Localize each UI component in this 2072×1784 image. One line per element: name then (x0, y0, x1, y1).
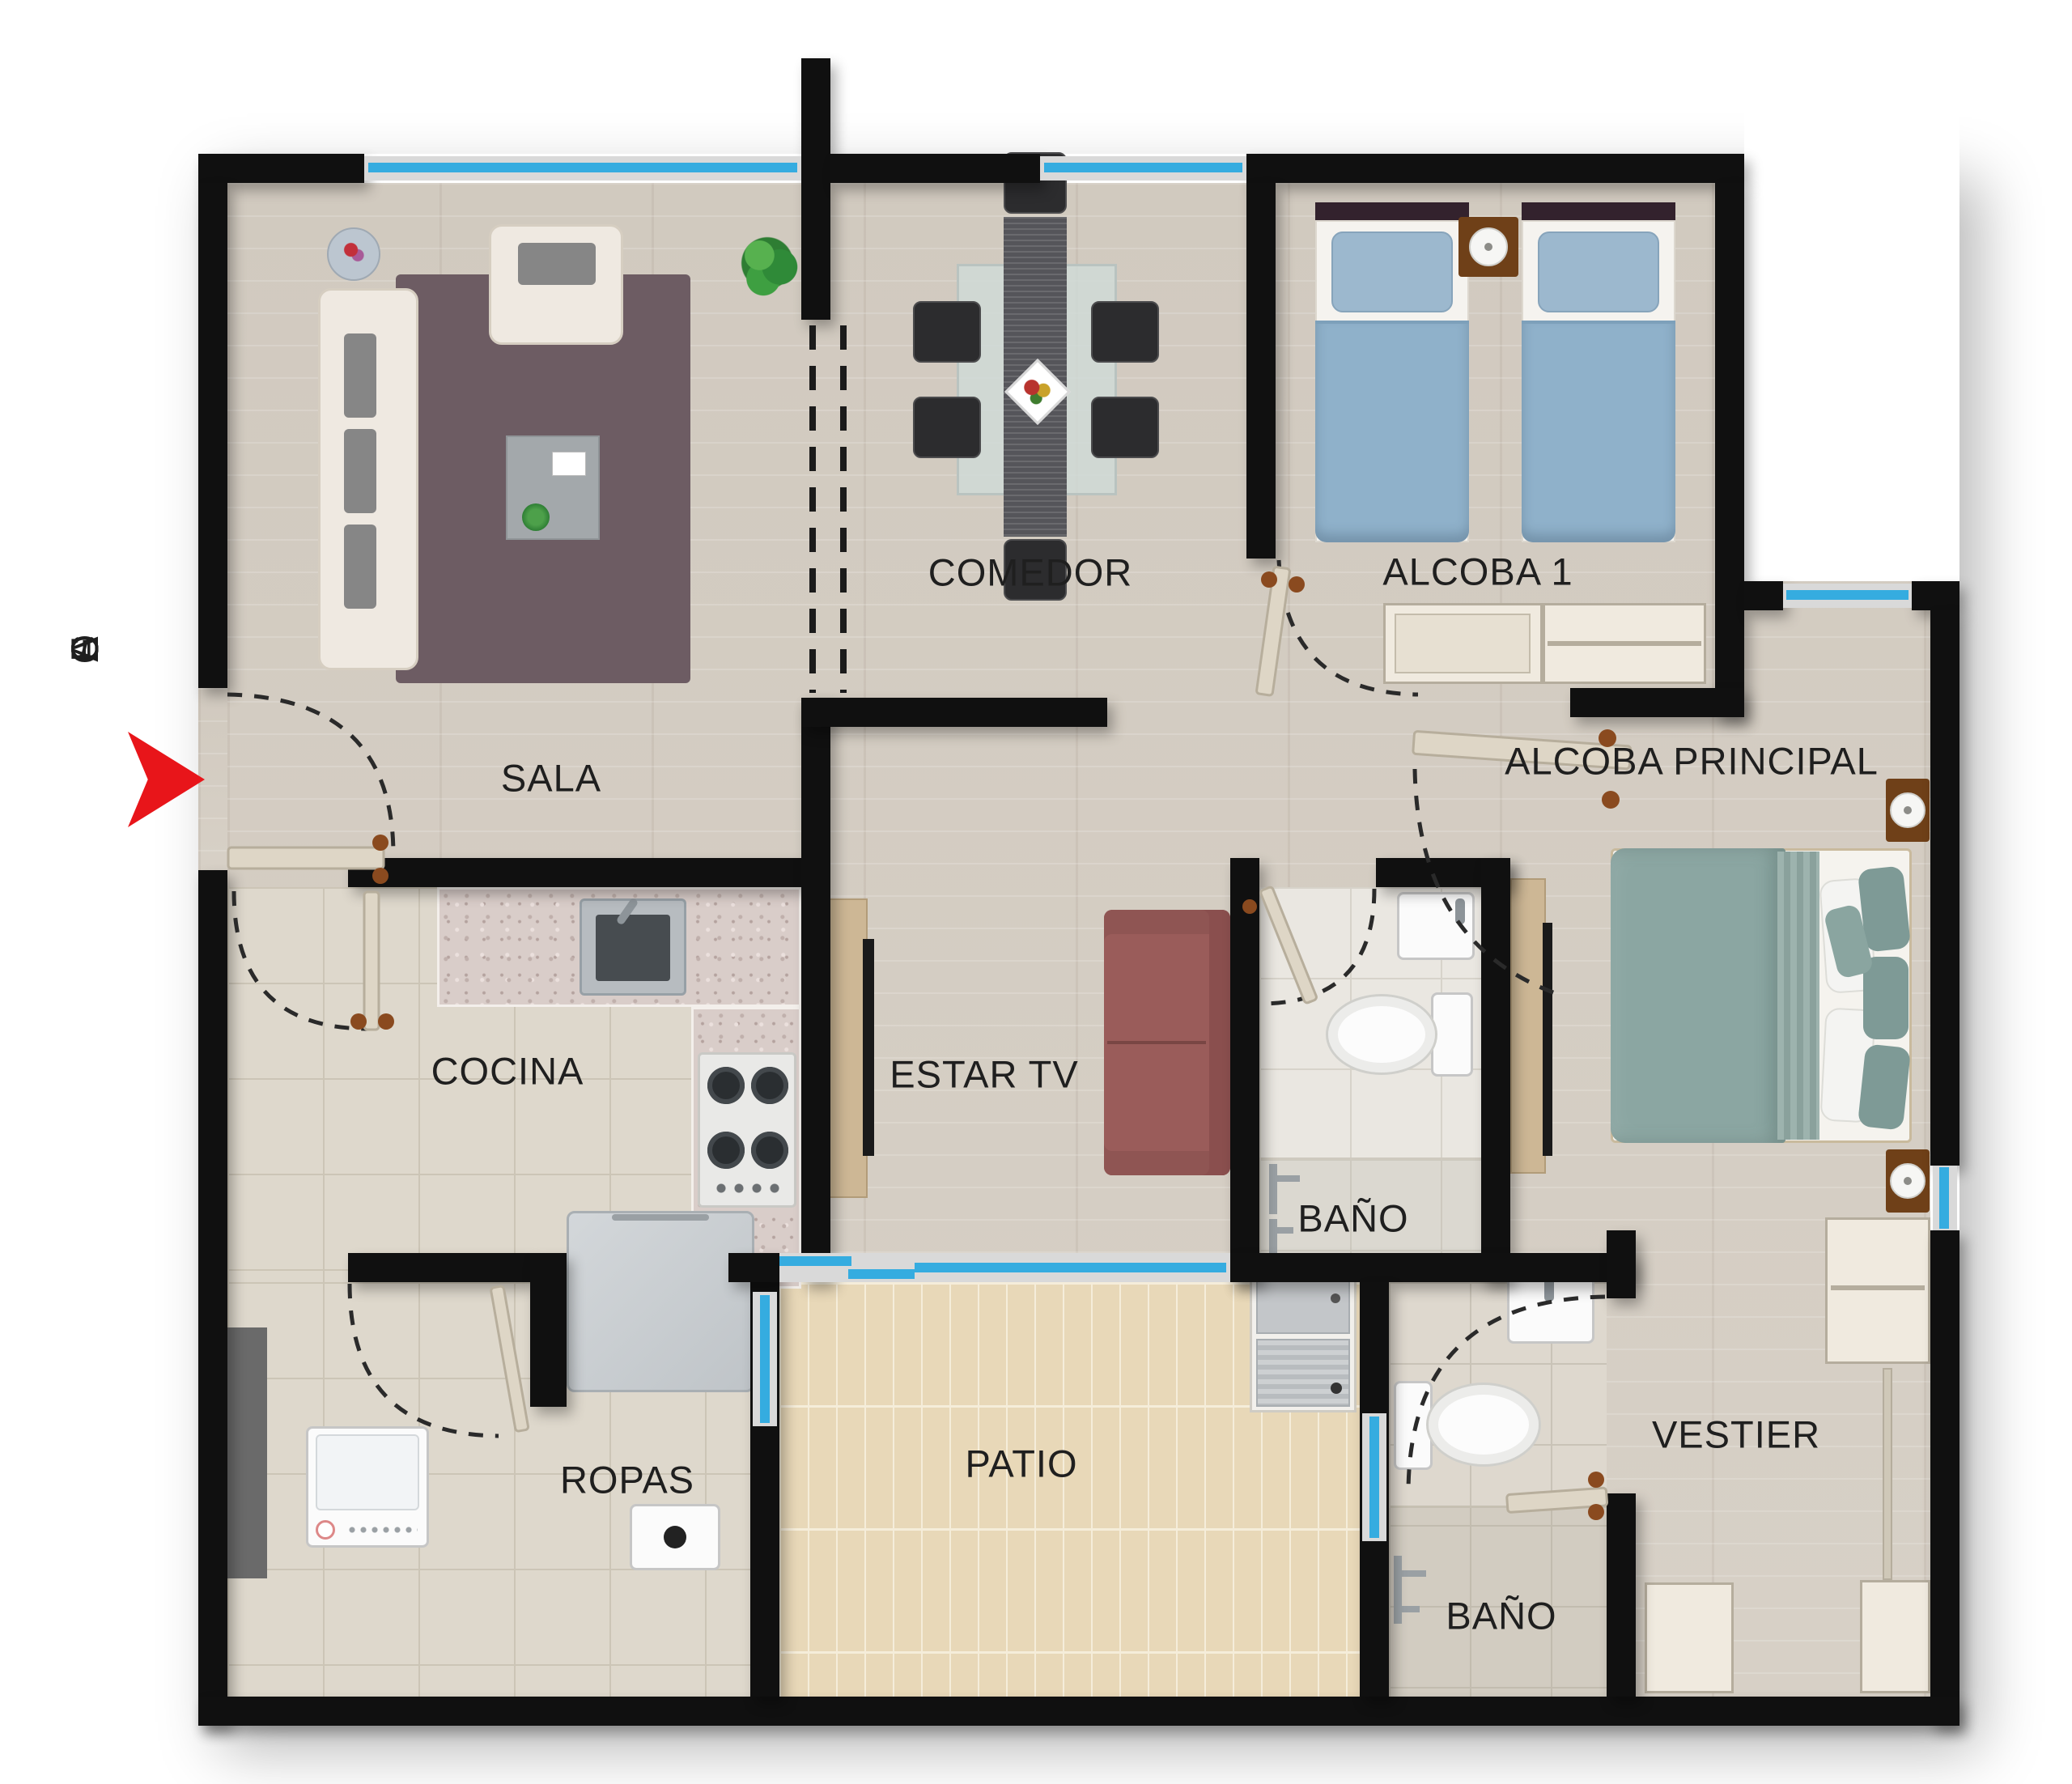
kitchen-door-arc (234, 891, 368, 1029)
room-label-alcoba-1: ALCOBA 1 (1382, 550, 1573, 594)
room-label-comedor: COMEDOR (928, 550, 1132, 595)
room-label-cocina: COCINA (431, 1049, 584, 1094)
door-knob-icon (1588, 1504, 1604, 1520)
entry-door-arc (227, 694, 393, 855)
bano-principal-door-leaf (1260, 886, 1318, 1004)
door-knob-icon (372, 868, 388, 884)
door-knob-icon (350, 1013, 367, 1030)
door-knob-icon (378, 1013, 394, 1030)
principal-door-arc (1415, 769, 1562, 996)
entry-door-leaf (228, 847, 384, 869)
door-knob-icon (1261, 571, 1277, 588)
ropas-door-arc (350, 1284, 499, 1436)
room-label-bano-social: BAÑO (1446, 1594, 1556, 1638)
room-label-ropas: ROPAS (560, 1458, 694, 1502)
door-knob-icon (1289, 576, 1305, 593)
door-knob-icon (1602, 791, 1620, 809)
room-label-vestier: VESTIER (1652, 1412, 1820, 1457)
door-knob-icon (1588, 1472, 1604, 1488)
room-label-bano-principal: BAÑO (1297, 1196, 1408, 1241)
floor-plan: SALA COMEDOR ALCOBA 1 ALCOBA PRINCIPAL C… (0, 0, 2072, 1784)
door-knob-icon (372, 835, 388, 851)
room-label-alcoba-principal: ALCOBA PRINCIPAL (1505, 739, 1879, 784)
door-knob-icon (1242, 899, 1257, 914)
ropas-door-leaf (490, 1286, 529, 1432)
kitchen-door-leaf (364, 892, 379, 1030)
bano-social-door-arc (1408, 1297, 1605, 1491)
door-swing-overlay (0, 0, 2072, 1784)
room-label-estar-tv: ESTAR TV (890, 1052, 1078, 1097)
room-label-sala: SALA (501, 756, 601, 801)
room-label-patio: PATIO (965, 1442, 1077, 1486)
